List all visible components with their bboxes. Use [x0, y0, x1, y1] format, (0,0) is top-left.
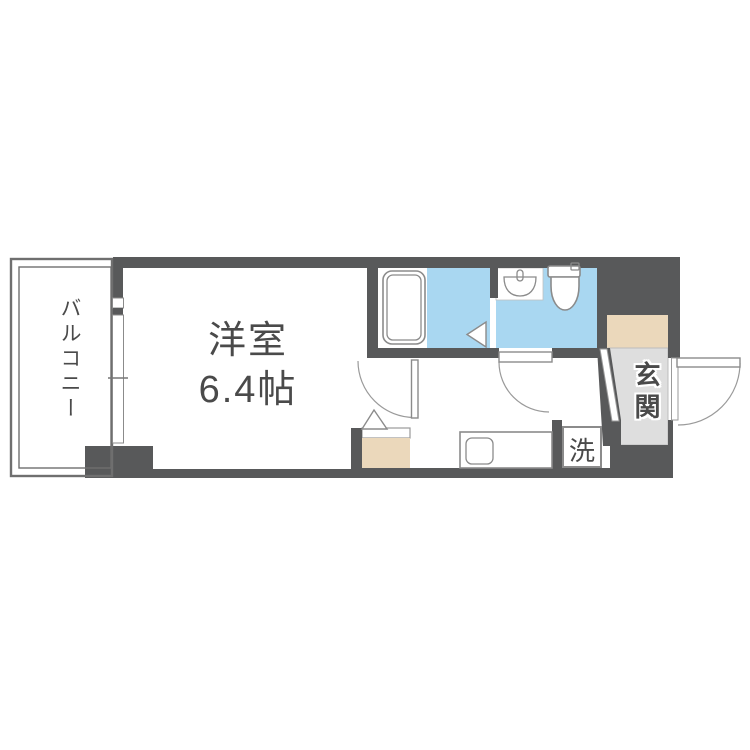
wall-segment: [610, 445, 673, 478]
wall-segment: [351, 428, 362, 478]
wall-segment: [668, 420, 673, 445]
wall-segment: [362, 468, 611, 478]
wall-segment: [113, 257, 597, 268]
wall-segment: [153, 469, 352, 478]
wall-segment: [597, 257, 680, 315]
shoe-cabinet: [607, 315, 668, 348]
toilet-door-swing: [499, 352, 552, 412]
wall-segment: [113, 268, 123, 298]
room-size: 6.4帖: [120, 366, 376, 415]
balcony-label: バルコニー: [54, 297, 84, 422]
wall-segment: [85, 446, 153, 478]
bathtub-icon: [383, 271, 425, 344]
wall-segment: [552, 420, 562, 468]
laundry-label: 洗: [563, 431, 601, 468]
entrance-door-swing: [672, 358, 741, 425]
window-frame-segment: [113, 308, 123, 315]
floor-plan: バルコニー 洋室 6.4帖 玄関 洗: [0, 0, 750, 750]
entrance-label: 玄関: [628, 361, 665, 425]
wall-segment: [367, 348, 499, 358]
room-name: 洋室: [120, 317, 376, 366]
washbasin-corner-floor: [496, 268, 543, 300]
kitchen-sink-icon: [460, 432, 552, 468]
wall-segment: [490, 268, 498, 298]
wall-segment: [668, 315, 680, 358]
window-pane: [113, 298, 124, 308]
room-label: 洋室 6.4帖: [120, 317, 376, 415]
wall-segment: [597, 315, 607, 348]
alcove-unit: [362, 438, 410, 468]
